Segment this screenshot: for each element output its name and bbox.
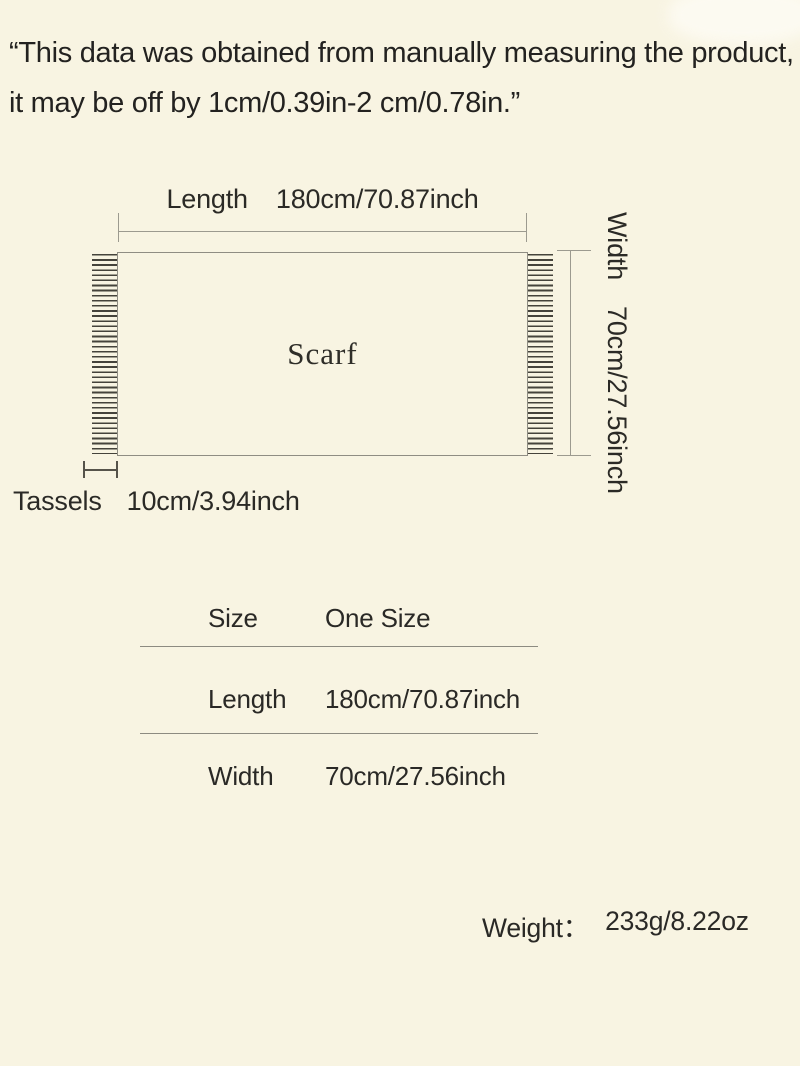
table-row-width-value: 70cm/27.56inch <box>325 761 506 792</box>
table-row-length-label: Length <box>208 684 325 715</box>
tassels-value: 10cm/3.94inch <box>127 486 300 517</box>
weight-row: Weight： 233g/8.22oz <box>482 906 749 945</box>
tassel-dimension-tick-right <box>116 461 118 478</box>
tassels-left <box>92 254 117 454</box>
tassels-right <box>528 254 553 454</box>
length-value: 180cm/70.87inch <box>276 184 479 215</box>
tassels-label: Tassels <box>13 486 102 517</box>
width-dimension-tick-bottom <box>557 455 591 456</box>
table-row-size-label: Size <box>208 603 325 634</box>
scarf-outline: Scarf <box>117 252 528 456</box>
weight-value: 233g/8.22oz <box>605 906 749 945</box>
table-divider-1 <box>140 646 538 647</box>
width-value: 70cm/27.56inch <box>601 306 632 494</box>
table-row-width: Width 70cm/27.56inch <box>208 761 506 792</box>
disclaimer-line-2: it may be off by 1cm/0.39in-2 cm/0.78in.… <box>9 78 794 128</box>
disclaimer-line-1: “This data was obtained from manually me… <box>9 28 794 78</box>
width-dimension-label: Width 70cm/27.56inch <box>601 212 632 522</box>
length-dimension-tick-right <box>526 213 527 242</box>
width-label: Width <box>601 212 632 280</box>
table-divider-2 <box>140 733 538 734</box>
table-row-length-value: 180cm/70.87inch <box>325 684 520 715</box>
length-dimension-line <box>118 231 527 232</box>
weight-label: Weight： <box>482 906 589 945</box>
length-dimension-tick-left <box>118 213 119 242</box>
length-dimension-label: Length 180cm/70.87inch <box>118 184 527 215</box>
width-dimension-tick-top <box>557 250 591 251</box>
tassel-dimension-line <box>83 469 117 471</box>
table-row-length: Length 180cm/70.87inch <box>208 684 520 715</box>
table-row-width-label: Width <box>208 761 325 792</box>
disclaimer: “This data was obtained from manually me… <box>9 28 794 128</box>
width-dimension-line <box>570 250 571 456</box>
tassel-dimension-tick-left <box>83 461 85 478</box>
length-label: Length <box>166 184 247 215</box>
tassel-dimension-label: Tassels 10cm/3.94inch <box>13 486 300 517</box>
table-row-size-value: One Size <box>325 603 430 634</box>
table-row-size: Size One Size <box>208 603 430 634</box>
scarf-label: Scarf <box>287 336 357 372</box>
size-chart-image: “This data was obtained from manually me… <box>0 0 800 1066</box>
